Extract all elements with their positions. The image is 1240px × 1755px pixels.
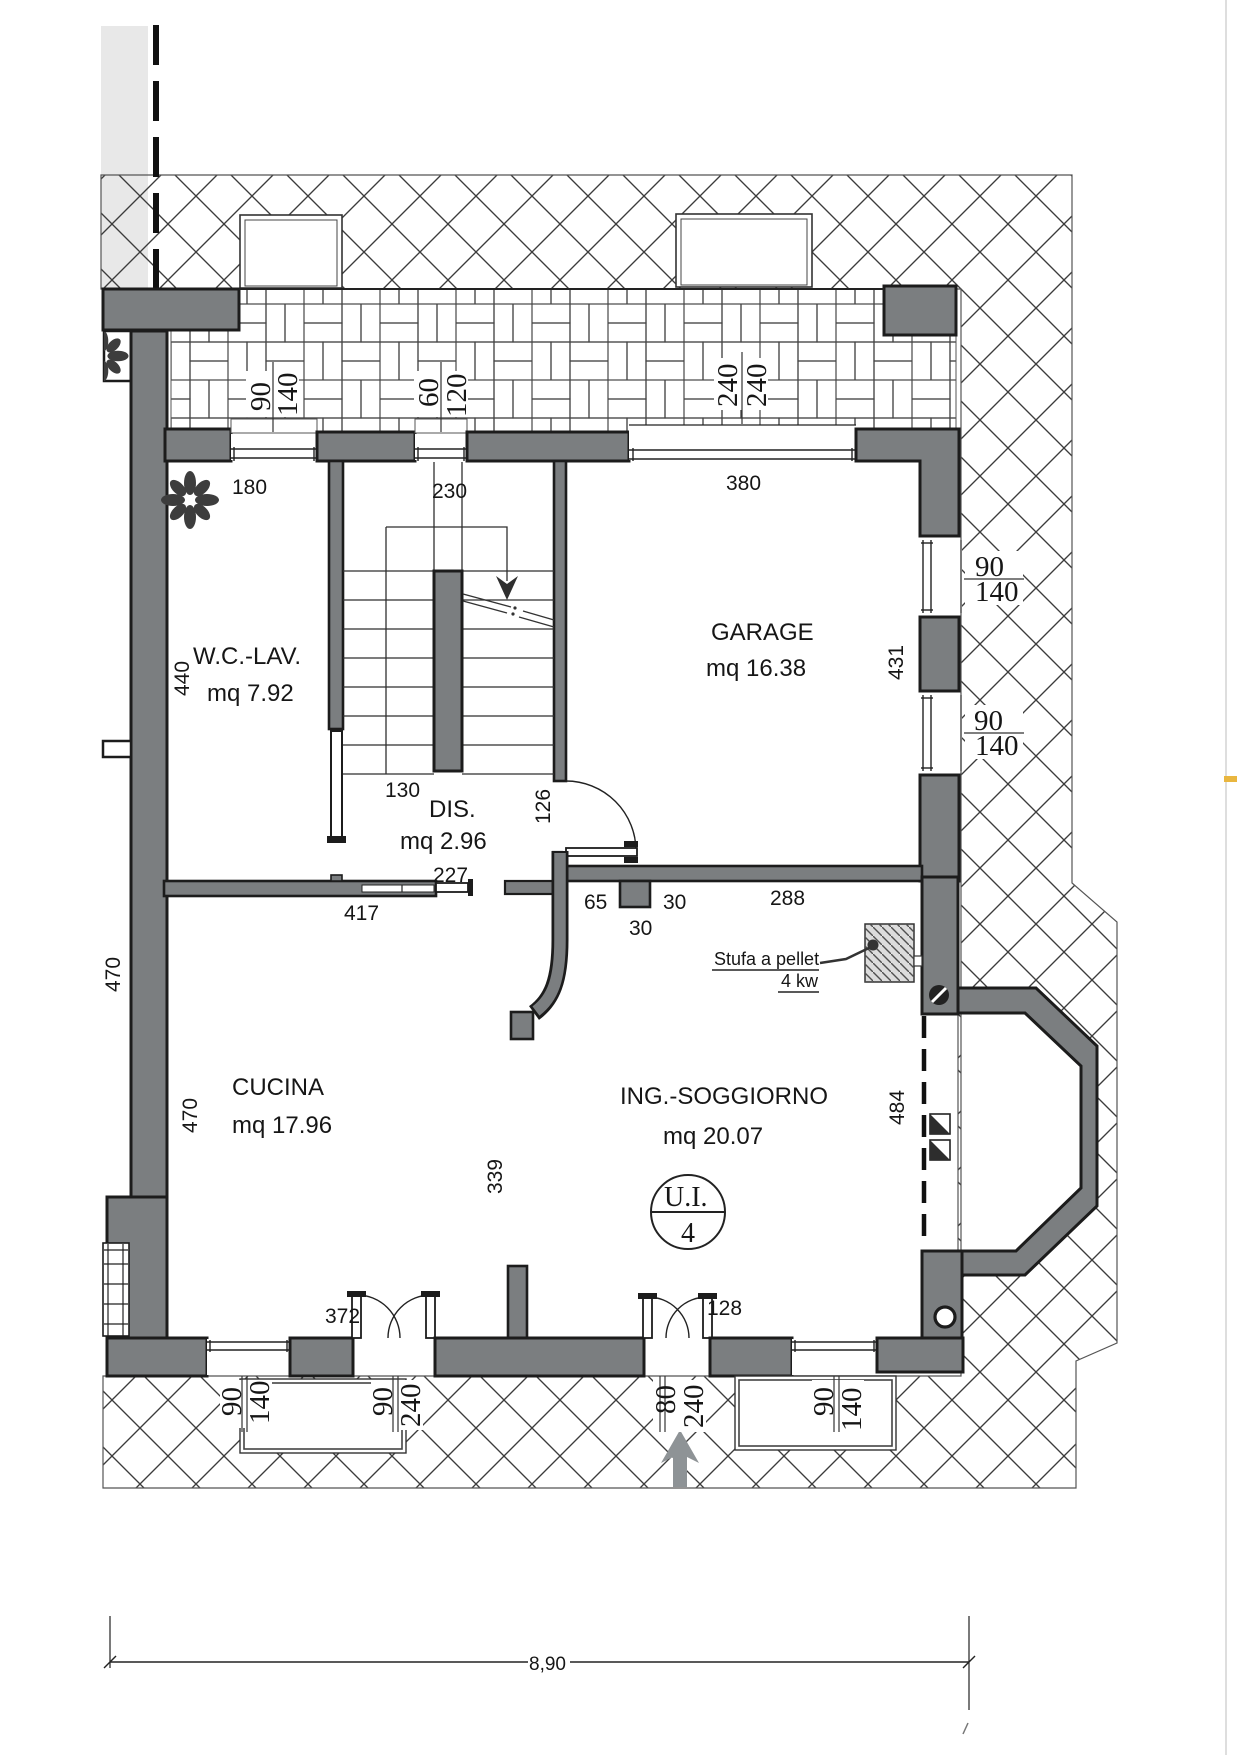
svg-text:30: 30 [629, 917, 652, 940]
svg-text:339: 339 [484, 1159, 507, 1194]
svg-text:230: 230 [432, 480, 467, 503]
svg-text:mq 7.92: mq 7.92 [207, 680, 294, 707]
svg-text:288: 288 [770, 887, 805, 910]
svg-text:417: 417 [344, 902, 379, 925]
svg-text:U.I.: U.I. [664, 1182, 708, 1213]
svg-text:180: 180 [232, 476, 267, 499]
svg-text:8,90: 8,90 [529, 1654, 566, 1675]
svg-text:128: 128 [707, 1297, 742, 1320]
svg-text:484: 484 [886, 1090, 909, 1125]
svg-text:372: 372 [325, 1305, 360, 1328]
svg-text:431: 431 [885, 645, 908, 680]
svg-text:65: 65 [584, 891, 607, 914]
svg-text:470: 470 [179, 1098, 202, 1133]
svg-text:mq 20.07: mq 20.07 [663, 1123, 763, 1150]
svg-text:mq 2.96: mq 2.96 [400, 828, 487, 855]
svg-text:130: 130 [385, 779, 420, 802]
svg-text:120: 120 [441, 374, 473, 418]
svg-text:W.C.-LAV.: W.C.-LAV. [193, 643, 301, 670]
svg-text:227: 227 [433, 864, 468, 887]
svg-text:GARAGE: GARAGE [711, 619, 814, 646]
svg-text:Stufa a pellet: Stufa a pellet [714, 949, 819, 969]
svg-text:mq 16.38: mq 16.38 [706, 655, 806, 682]
svg-text:240: 240 [712, 364, 744, 408]
svg-text:240: 240 [741, 364, 773, 408]
svg-text:140: 140 [244, 1381, 276, 1425]
svg-text:4 kw: 4 kw [781, 971, 819, 991]
svg-text:140: 140 [272, 373, 304, 417]
svg-text:CUCINA: CUCINA [232, 1074, 324, 1101]
svg-text:140: 140 [836, 1388, 868, 1432]
svg-text:440: 440 [171, 661, 194, 696]
svg-text:126: 126 [532, 789, 555, 824]
svg-text:DIS.: DIS. [429, 796, 476, 823]
svg-text:140: 140 [975, 730, 1019, 762]
svg-text:30: 30 [663, 891, 686, 914]
svg-text:470: 470 [102, 957, 125, 992]
svg-text:140: 140 [975, 576, 1019, 608]
svg-text:4: 4 [681, 1218, 695, 1249]
svg-text:380: 380 [726, 472, 761, 495]
svg-text:240: 240 [395, 1384, 427, 1428]
svg-text:240: 240 [678, 1385, 710, 1429]
svg-text:ING.-SOGGIORNO: ING.-SOGGIORNO [620, 1083, 828, 1110]
svg-text:mq 17.96: mq 17.96 [232, 1112, 332, 1139]
